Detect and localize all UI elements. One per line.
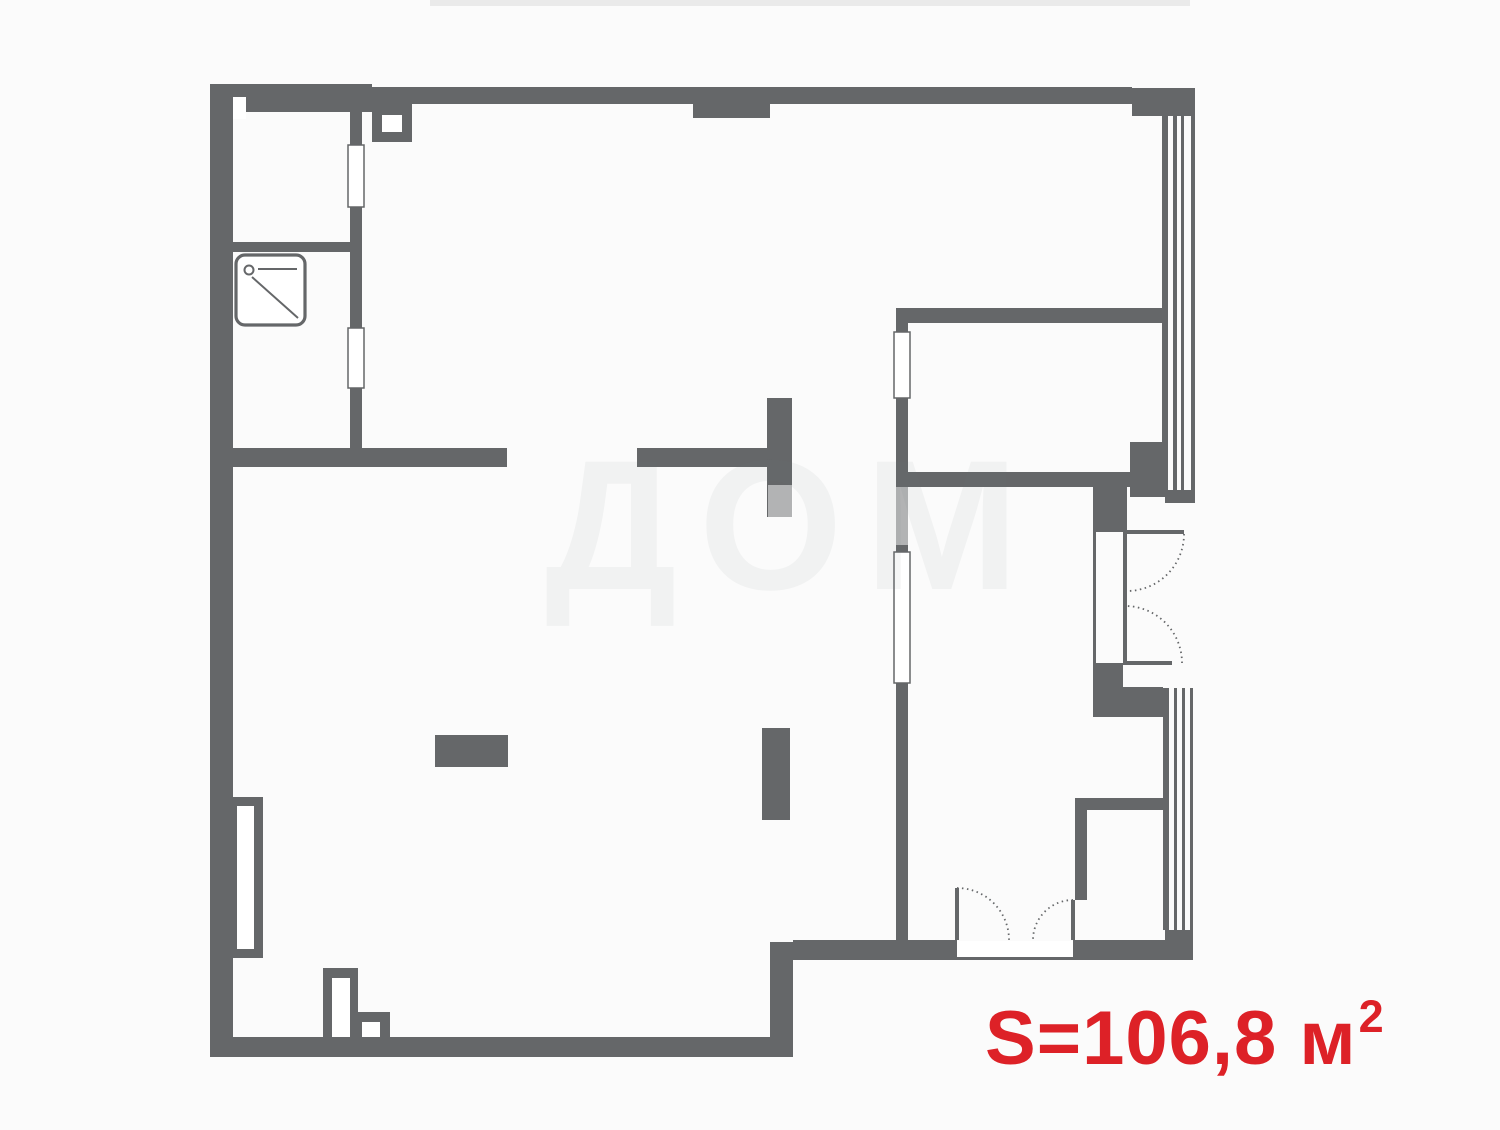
door-swing-arc <box>1125 606 1182 663</box>
area-value: S=106,8 м <box>985 996 1357 1081</box>
closet-shower-divider-wall <box>233 242 350 252</box>
duct-opening <box>382 115 402 132</box>
door-swing-arc <box>957 888 1009 940</box>
window-glazing-line <box>1191 115 1195 490</box>
window-glazing-line <box>1182 688 1185 930</box>
window-glazing-line <box>1174 688 1177 930</box>
bedroom-bottom-wall <box>896 308 1165 323</box>
top-wall-pier <box>693 104 770 118</box>
window-glazing-line <box>1181 115 1184 490</box>
kitchen-unit <box>435 735 508 767</box>
door-swing-arc <box>1127 534 1184 591</box>
bottom-right-wall-left <box>793 940 957 960</box>
closet2-left-wall <box>1075 798 1087 900</box>
floorplan-page: ДОМ S=106,8 м2 <box>0 0 1500 1130</box>
niche-inner <box>362 1022 380 1037</box>
outer-wall-top-right-corner <box>1132 88 1195 116</box>
shower-room-bottom-wall <box>233 448 507 467</box>
terrace-door-leaf-right <box>1071 900 1075 940</box>
window-pier-right <box>1130 442 1165 497</box>
balcony-jamb-upper <box>1093 487 1127 532</box>
balcony-door-frame-outer <box>1093 532 1096 663</box>
balcony-jamb-lower-2 <box>1123 687 1163 717</box>
niche-inner <box>332 978 350 1037</box>
balcony-jamb-lower <box>1093 663 1123 717</box>
terrace-door-threshold <box>957 941 1073 957</box>
balcony-door-leaf-top <box>1127 530 1184 534</box>
balcony-door-frame-inner <box>1123 532 1127 663</box>
watermark: ДОМ <box>545 420 1041 632</box>
window-band-bottom-cap <box>1165 930 1193 960</box>
window-glazing-line <box>1190 688 1193 930</box>
door-swing-arc <box>1033 900 1073 940</box>
terrace-door-sill-line <box>957 957 1073 960</box>
balcony-door-leaf-bottom <box>1123 661 1172 665</box>
closet2-top-wall <box>1075 798 1165 810</box>
window-glazing-line <box>1173 115 1177 490</box>
room-divider-stub <box>762 728 790 820</box>
area-superscript: 2 <box>1359 991 1385 1042</box>
niche-inner <box>237 806 254 949</box>
window-opening <box>894 332 910 398</box>
window-top-band-cap <box>1165 490 1195 503</box>
area-label: S=106,8 м2 <box>985 995 1383 1082</box>
terrace-door-leaf-left <box>955 888 959 940</box>
outer-wall-top <box>372 87 1132 104</box>
window-glazing-line <box>1163 688 1169 930</box>
outer-wall-bottom <box>210 1037 793 1057</box>
window-glazing-line <box>1162 115 1168 490</box>
wall-notch <box>233 97 246 119</box>
door-opening <box>348 145 364 207</box>
door-opening <box>348 328 364 388</box>
